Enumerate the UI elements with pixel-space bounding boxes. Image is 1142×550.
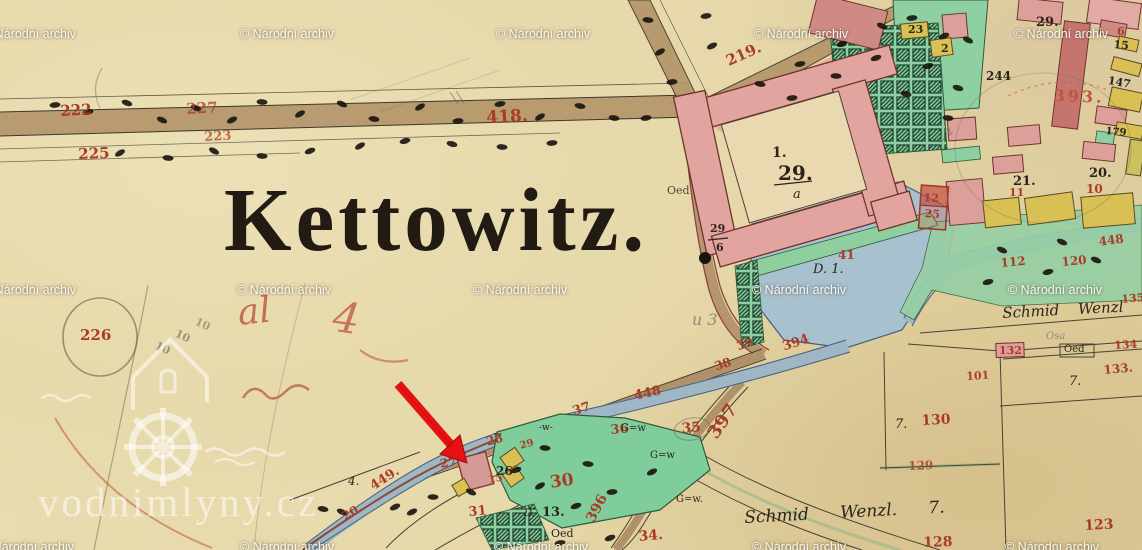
historic-map-canvas: Kettowitz. 222227223225418.219.393.61529…: [0, 0, 1142, 550]
red-annotation-arrow: [0, 0, 1142, 550]
